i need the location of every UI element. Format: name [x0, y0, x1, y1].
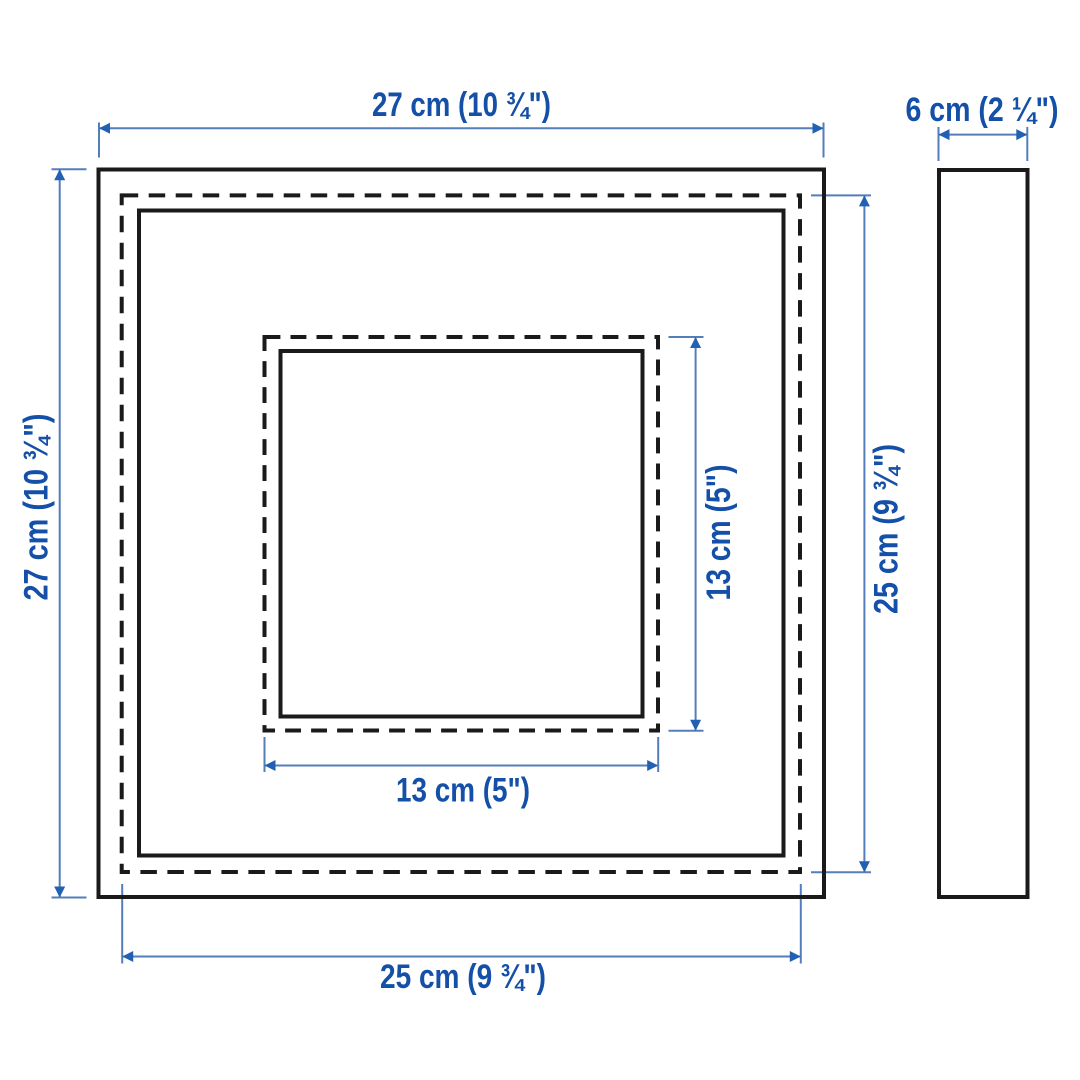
svg-text:27 cm (10 ¾"): 27 cm (10 ¾")	[372, 86, 551, 124]
svg-text:25 cm (9 ¾"): 25 cm (9 ¾")	[868, 444, 906, 614]
svg-text:13 cm (5"): 13 cm (5")	[396, 772, 530, 810]
svg-text:25 cm (9 ¾"): 25 cm (9 ¾")	[380, 958, 546, 996]
svg-text:27 cm (10 ¾"): 27 cm (10 ¾")	[18, 414, 56, 601]
svg-text:6 cm (2 ¼"): 6 cm (2 ¼")	[906, 91, 1059, 129]
svg-text:13 cm (5"): 13 cm (5")	[700, 465, 738, 601]
